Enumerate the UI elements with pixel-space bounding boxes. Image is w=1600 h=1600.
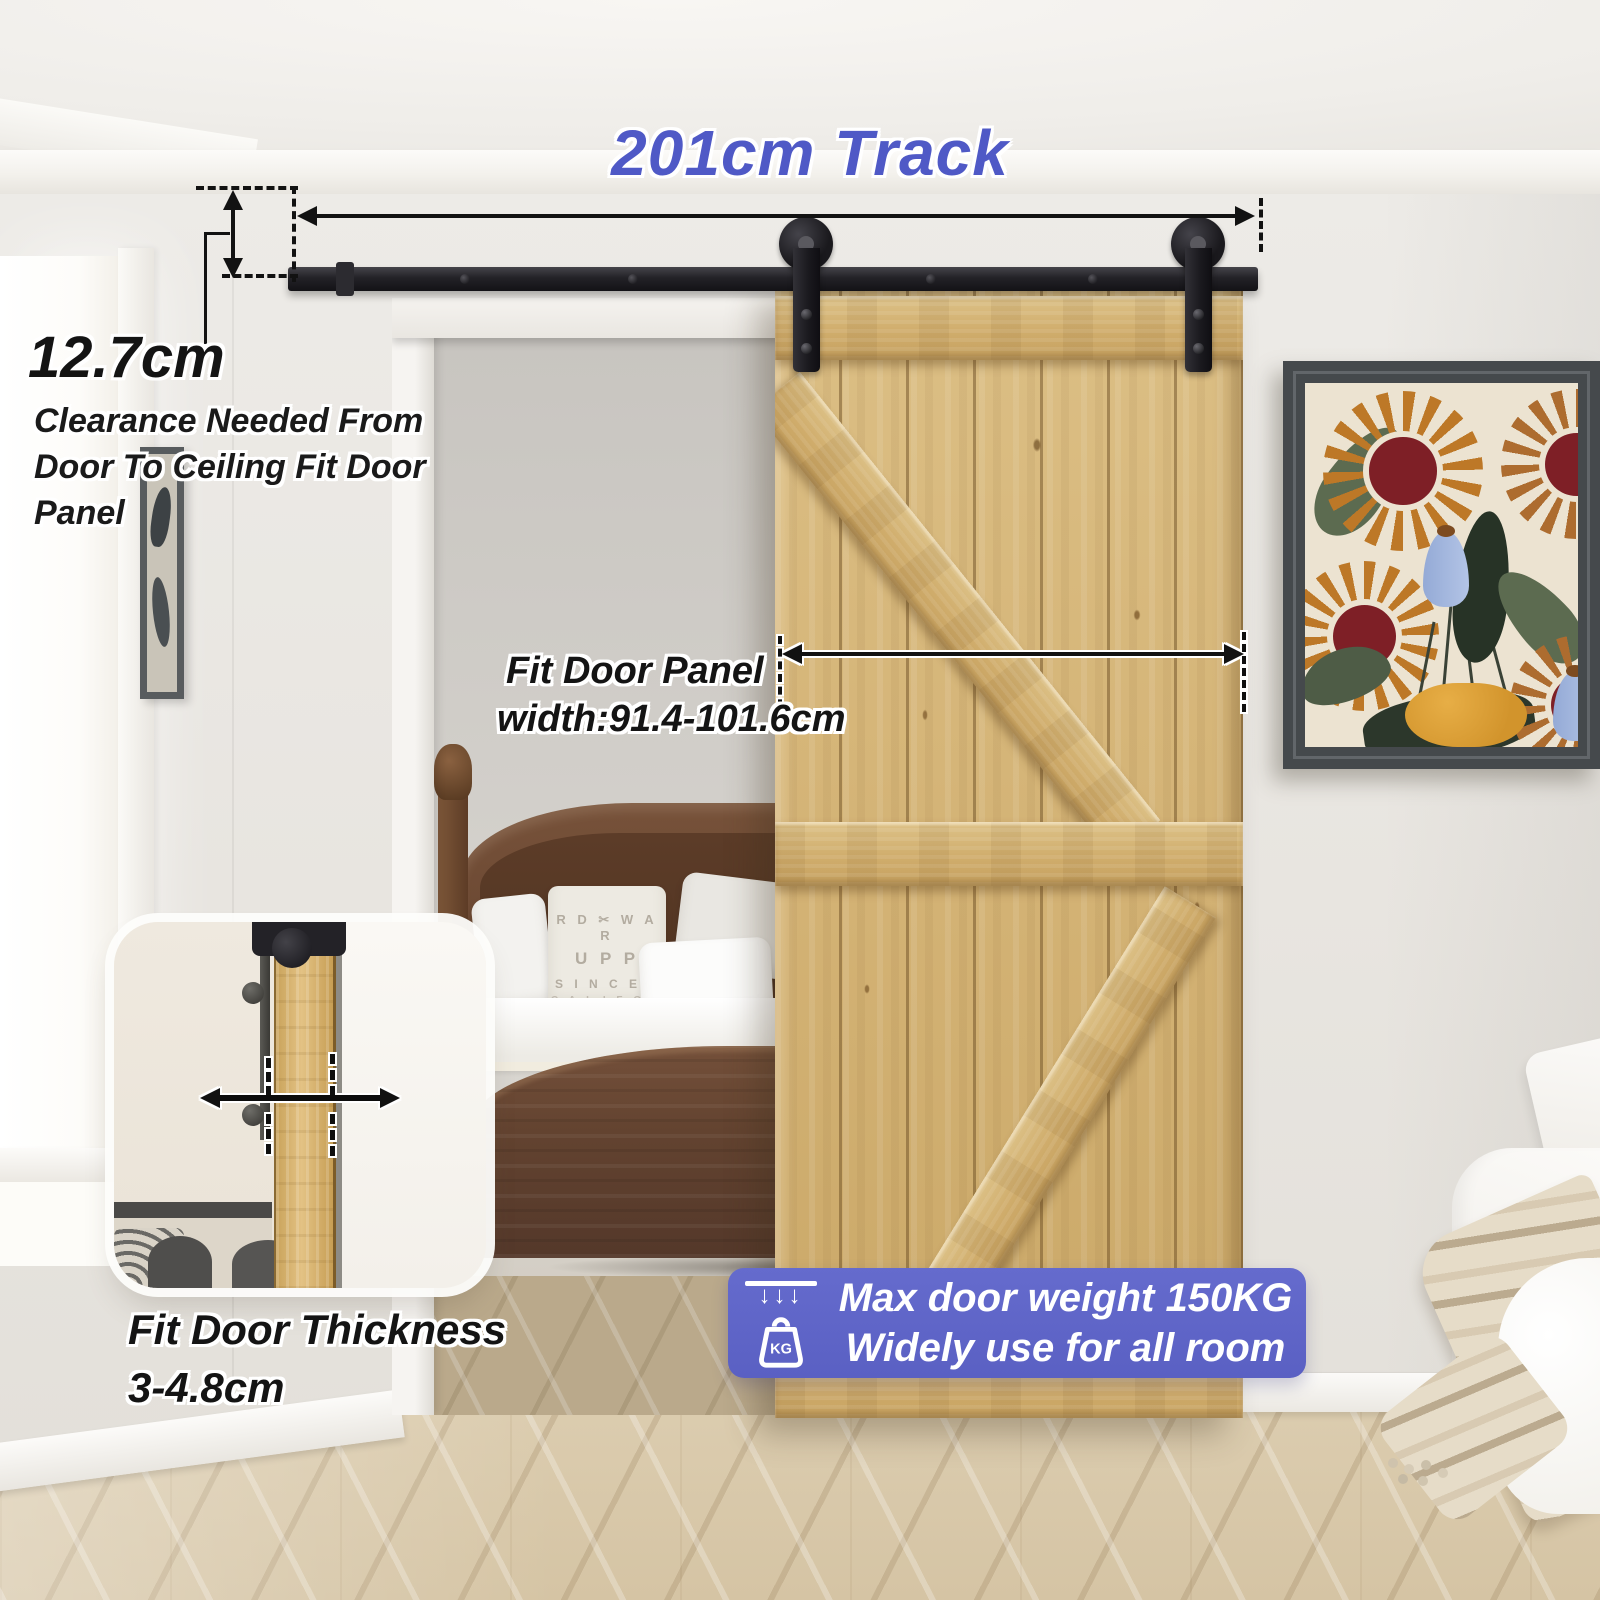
painting-art — [1305, 383, 1578, 747]
dashed-extent-line — [196, 186, 298, 190]
pillow-print-line: R D ✂ W A R — [548, 912, 666, 943]
badge-line2: Widely use for all room — [833, 1326, 1298, 1371]
blanket-tassels — [1388, 1458, 1398, 1468]
dashed-extent-line — [266, 1114, 271, 1154]
badge-line1: Max door weight 150KG — [833, 1276, 1298, 1321]
arrow-shaft — [794, 652, 1232, 656]
clearance-value-label: 12.7cm — [28, 324, 225, 391]
dashed-extent-line — [330, 1114, 335, 1156]
arrow-head — [380, 1088, 400, 1108]
kg-icon-label: KG — [770, 1342, 792, 1358]
vase — [1405, 683, 1527, 747]
track-length-label: 201cm Track — [560, 116, 1060, 190]
arrow-head — [297, 206, 317, 226]
sliding-track — [288, 267, 1258, 291]
strap-bolt — [1193, 343, 1204, 354]
barn-door — [775, 285, 1243, 1418]
bed-post-finial — [434, 744, 472, 800]
arrow-head — [1235, 206, 1255, 226]
flower-painting — [1283, 361, 1600, 769]
panel-width-label-line1: Fit Door Panel — [506, 650, 764, 693]
door-middle-rail — [775, 822, 1243, 886]
arrow-shaft — [231, 202, 235, 266]
door-hanger-right — [1171, 217, 1225, 377]
clearance-line: Panel — [34, 490, 426, 536]
strap-bolt — [1193, 309, 1204, 320]
arrow-head — [223, 258, 243, 278]
arrow-head — [782, 644, 802, 664]
strap-bolt — [801, 343, 812, 354]
arrow-head — [1224, 644, 1244, 664]
track-screw — [926, 274, 936, 284]
clearance-line: Clearance Needed From — [34, 398, 426, 444]
weight-kg-icon: KG — [750, 1310, 812, 1372]
track-screw — [628, 274, 638, 284]
arrow-head — [223, 190, 243, 210]
thickness-label-line1: Fit Door Thickness — [128, 1306, 506, 1354]
max-weight-badge: ↓↓↓ KG Max door weight 150KG Widely use … — [728, 1268, 1306, 1378]
dashed-extent-line — [292, 186, 296, 282]
arrow-head — [200, 1088, 220, 1108]
track-standoff — [336, 262, 354, 296]
window-lower-pane — [0, 1182, 118, 1266]
panel-width-dimension — [778, 628, 1248, 732]
daisy-flower — [1501, 389, 1578, 539]
clearance-description: Clearance Needed From Door To Ceiling Fi… — [34, 398, 426, 536]
leader-line — [204, 232, 230, 235]
panel-width-label-line2: width:91.4-101.6cm — [497, 698, 845, 741]
thickness-label-line2: 3-4.8cm — [128, 1364, 284, 1412]
arrow-shaft — [309, 214, 1243, 218]
down-arrows-icon: ↓↓↓ — [745, 1282, 817, 1310]
inset-thickness-dimension — [114, 922, 486, 1288]
dashed-extent-line — [266, 1058, 271, 1096]
door-hanger-left — [779, 217, 833, 377]
daisy-flower — [1323, 391, 1483, 551]
clearance-line: Door To Ceiling Fit Door — [34, 444, 426, 490]
track-screw — [460, 274, 470, 284]
dashed-extent-line — [330, 1054, 335, 1096]
dashed-extent-line — [1259, 198, 1263, 252]
product-scene: R D ✂ W A R U P P S I N C E 1 C A L I F … — [0, 0, 1600, 1600]
strap-bolt — [801, 309, 812, 320]
track-screw — [1088, 274, 1098, 284]
arrow-shaft — [212, 1095, 388, 1101]
